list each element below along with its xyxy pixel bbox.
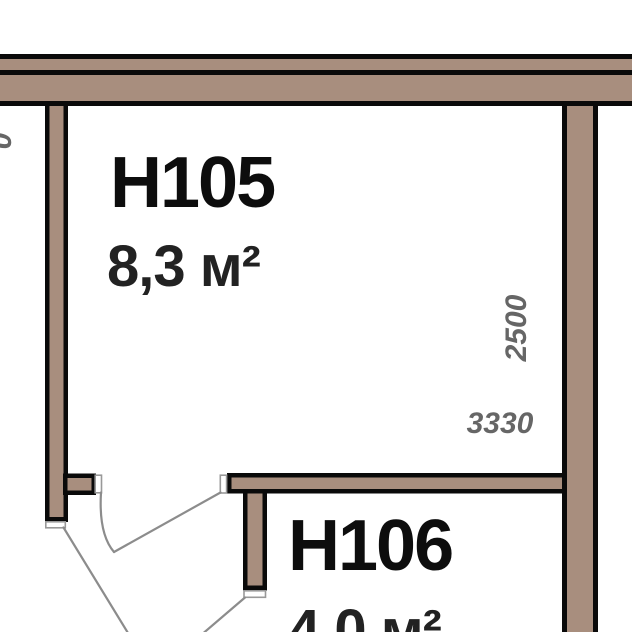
door-jamb-h106-pier-bottom	[244, 591, 266, 598]
left-pier-fill	[68, 478, 92, 491]
left-wall	[45, 106, 68, 522]
floor-plan: H105 8,3 м² H106 4,0 м² 2500 3330 0	[0, 0, 632, 632]
top-exterior-wall	[0, 54, 632, 106]
divider-wall-fill	[232, 478, 563, 490]
room-area-h106: 4,0 м²	[288, 598, 442, 632]
h106-door-pier	[243, 494, 267, 591]
door-leaf-h106	[114, 493, 221, 553]
top-wall-upper-layer	[0, 59, 632, 70]
left-wall-fill	[50, 106, 64, 517]
h105-h106-divider-wall	[227, 473, 562, 494]
left-door-pier	[63, 474, 96, 496]
dimension-h105-depth: 2500	[500, 294, 533, 362]
door-leaf-bottom-left	[64, 528, 129, 632]
room-label-h106: H106	[288, 506, 452, 586]
room-area-h105: 8,3 м²	[107, 234, 261, 299]
floor-plan-canvas: H105 8,3 м² H106 4,0 м² 2500 3330 0	[0, 0, 632, 632]
dimension-partial-left-edge: 0	[0, 132, 18, 149]
door-leaf-bottom-right	[204, 598, 246, 632]
door-jamb-divider-wall-left	[220, 475, 226, 493]
door-swing-arc-h106	[101, 493, 114, 553]
door-jamb-left-pier-right	[95, 475, 101, 493]
room-label-h105: H105	[110, 143, 275, 223]
door-jamb-left-wall-bottom	[46, 522, 66, 528]
right-wall-fill	[567, 106, 593, 632]
top-wall-lower-layer	[0, 75, 632, 101]
right-wall	[562, 106, 598, 632]
h106-pier-fill	[248, 494, 263, 586]
dimension-h105-width: 3330	[467, 407, 534, 440]
